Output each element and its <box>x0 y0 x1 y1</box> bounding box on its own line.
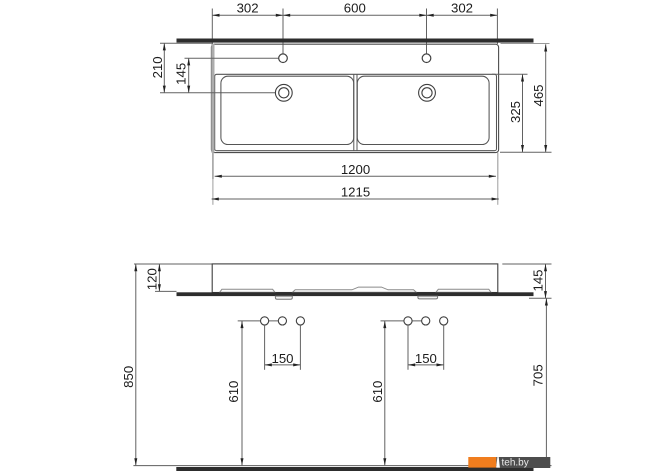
svg-text:302: 302 <box>451 1 473 16</box>
svg-text:325: 325 <box>508 101 523 123</box>
svg-text:600: 600 <box>344 1 366 16</box>
svg-text:150: 150 <box>271 351 293 366</box>
svg-text:1200: 1200 <box>341 162 370 177</box>
svg-text:610: 610 <box>370 381 385 403</box>
svg-text:1215: 1215 <box>341 185 370 200</box>
svg-text:610: 610 <box>226 381 241 403</box>
svg-text:210: 210 <box>150 56 165 78</box>
svg-text:850: 850 <box>121 366 136 388</box>
svg-text:465: 465 <box>531 84 546 106</box>
svg-text:145: 145 <box>174 63 189 85</box>
svg-text:120: 120 <box>145 268 160 290</box>
svg-text:150: 150 <box>415 351 437 366</box>
svg-text:teh.by: teh.by <box>502 457 529 468</box>
svg-text:705: 705 <box>531 364 546 386</box>
svg-text:145: 145 <box>531 269 546 291</box>
svg-text:302: 302 <box>237 1 259 16</box>
